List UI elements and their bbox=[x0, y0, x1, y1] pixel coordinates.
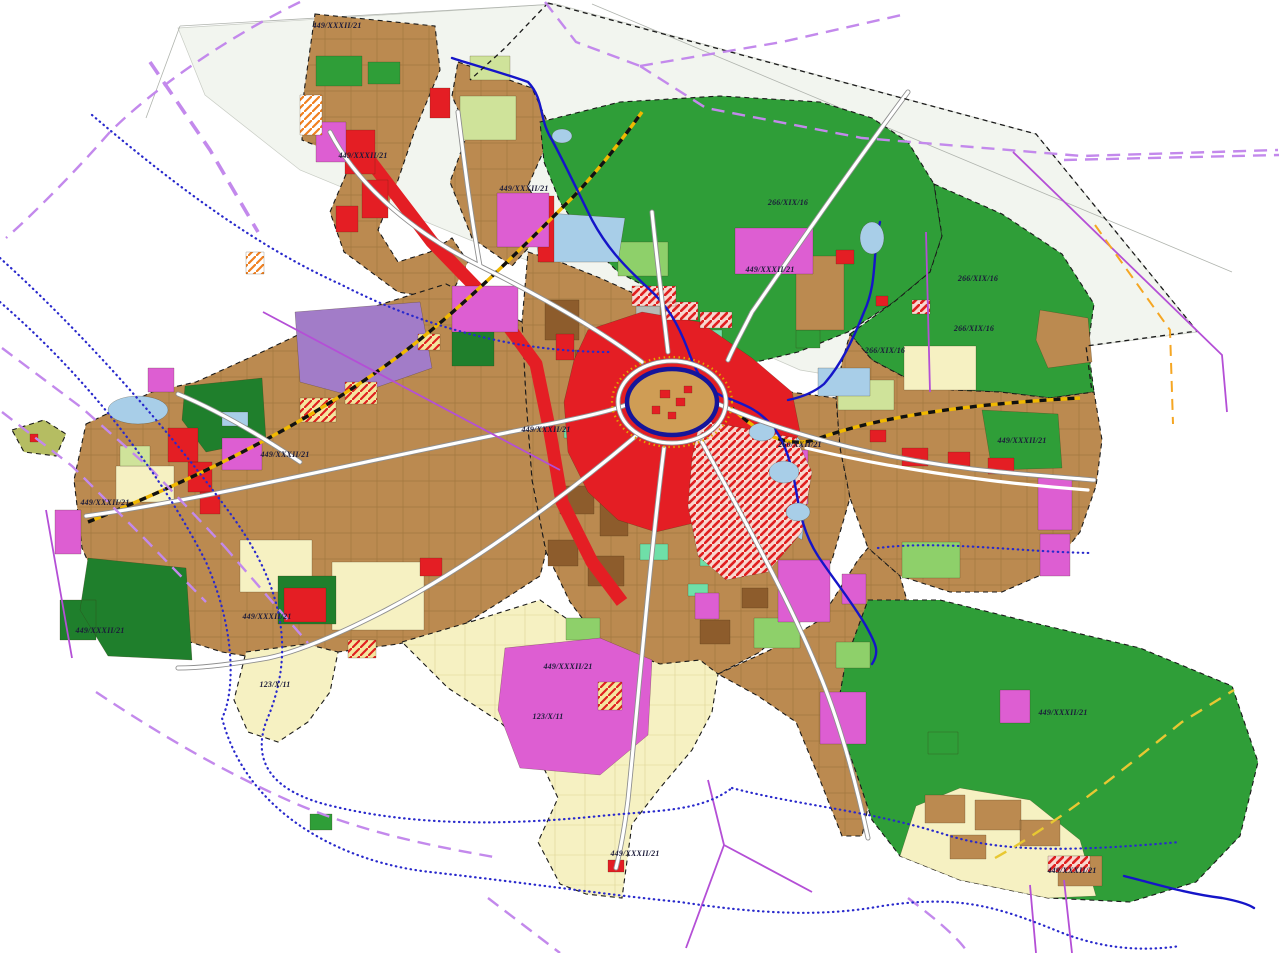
plan-label: 449/XXXII/21 bbox=[74, 626, 124, 635]
plan-label: 449/XXXII/21 bbox=[79, 498, 129, 507]
plan-label: 449/XXXII/21 bbox=[498, 184, 548, 193]
plan-label: 266/XIX/16 bbox=[957, 274, 998, 283]
plan-label: 449/XXXII/21 bbox=[241, 612, 291, 621]
zoning-map-viewport[interactable]: 449/XXXII/21449/XXXII/21449/XXXII/21266/… bbox=[0, 0, 1280, 953]
plan-label: 449/XXXII/21 bbox=[996, 436, 1046, 445]
plan-label: 449/XXXII/21 bbox=[259, 450, 309, 459]
plan-label: 449/XXXII/21 bbox=[520, 425, 570, 434]
plan-label: 266/XIX/16 bbox=[864, 346, 905, 355]
plan-label: 266/XIX/16 bbox=[953, 324, 994, 333]
plan-label: 123/X/11 bbox=[533, 712, 564, 721]
plan-label: 449/XXXII/21 bbox=[337, 151, 387, 160]
plan-label: 266/XIX/16 bbox=[767, 198, 808, 207]
plan-label: 449/XXXII/21 bbox=[744, 265, 794, 274]
plan-label: 449/XXXII/21 bbox=[542, 662, 592, 671]
zoning-map-canvas[interactable]: 449/XXXII/21449/XXXII/21449/XXXII/21266/… bbox=[0, 0, 1280, 953]
plan-label: 449/XXXII/21 bbox=[1046, 866, 1096, 875]
plan-label: 449/XXXII/21 bbox=[1037, 708, 1087, 717]
plan-label: 449/XXXII/21 bbox=[609, 849, 659, 858]
old-town-ring bbox=[627, 369, 717, 435]
plan-label: 449/XXXII/21 bbox=[311, 21, 361, 30]
plan-label: 260/XXII/21 bbox=[777, 440, 822, 449]
plan-label: 123/X/11 bbox=[260, 680, 291, 689]
